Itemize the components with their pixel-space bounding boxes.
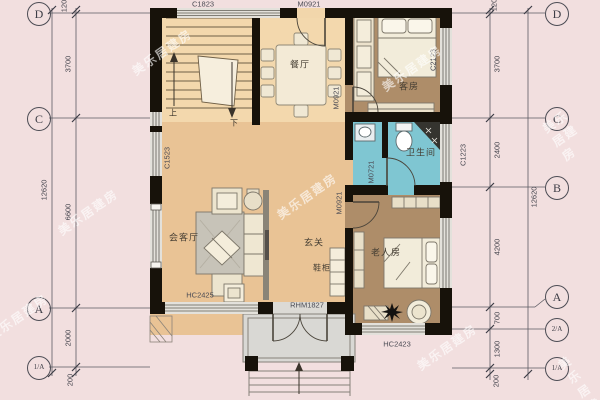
axis-right-b: B [545, 176, 569, 200]
dim-right-700: 700 [493, 312, 502, 325]
door-label-m0921-top: M0921 [298, 0, 321, 9]
room-label-dining: 餐厅 [290, 58, 310, 71]
room-label-bathroom: 卫生间 [406, 146, 436, 159]
window-label-c1823: C1823 [192, 0, 214, 9]
dim-left-2000: 2000 [64, 330, 73, 347]
dim-right-4200: 4200 [493, 239, 502, 256]
dim-left-200: 200 [66, 374, 75, 387]
room-label-elderly: 老人房 [371, 246, 401, 259]
shoe-cabinet [330, 248, 345, 296]
room-label-shoe-cabinet: 鞋柜 [313, 263, 331, 274]
floor-plan-page: D C A 1/A D C B A 2/A 1/A 餐厅 客房 卫生间 玄关 会… [0, 0, 600, 400]
stairs-up-label: 上 [169, 108, 177, 119]
axis-right-a: A [545, 285, 569, 309]
door-label-m0721: M0721 [367, 161, 376, 184]
door-label-m0921-hall: M0921 [335, 192, 344, 215]
window-label-hc2423: HC2423 [383, 340, 411, 349]
dim-right-200: 200 [492, 375, 501, 388]
axis-left-1a: 1/A [27, 356, 51, 380]
window-label-c1223: C1223 [459, 144, 468, 166]
dim-right-1300: 1300 [493, 341, 502, 358]
tv-set [265, 230, 269, 260]
dim-right-total: 12620 [530, 187, 539, 208]
room-label-living: 会客厅 [169, 231, 199, 244]
dim-left-120: 120 [60, 0, 69, 12]
dim-left-total: 12620 [40, 180, 49, 201]
room-label-hall: 玄关 [304, 236, 324, 249]
dim-right-120: 120 [490, 0, 499, 11]
dim-right-3700: 3700 [493, 56, 502, 73]
dim-right-2400: 2400 [493, 142, 502, 159]
axis-right-d: D [545, 2, 569, 26]
dim-left-3700: 3700 [64, 56, 73, 73]
axis-left-c: C [27, 107, 51, 131]
door-label-m0921-guest: M0921 [332, 87, 341, 110]
window-label-hc2425: HC2425 [186, 291, 214, 300]
axis-right-2a: 2/A [545, 318, 569, 342]
stairs-down-label: 下 [230, 118, 238, 129]
axis-left-d: D [27, 2, 51, 26]
window-label-c1523: C1523 [163, 147, 172, 169]
door-label-rhm1827: RHM1827 [290, 301, 324, 310]
